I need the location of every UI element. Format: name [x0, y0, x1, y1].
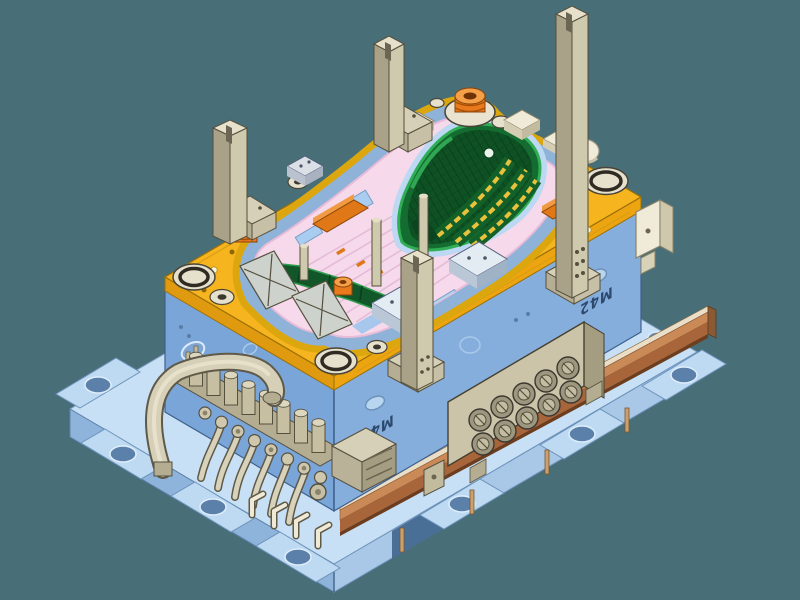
support-pillar	[374, 36, 404, 152]
guide-bushing	[315, 348, 357, 374]
support-pillar	[401, 250, 433, 390]
support-pillar	[556, 6, 588, 298]
guide-bushing	[584, 168, 628, 195]
cad-viewport[interactable]: M42 M42	[0, 0, 800, 600]
support-pillar	[213, 120, 247, 244]
cavity-hole	[484, 148, 494, 158]
spring-bushing	[334, 277, 352, 295]
guide-bushing	[173, 264, 215, 290]
cad-screenshot: M42 M42	[0, 0, 800, 600]
